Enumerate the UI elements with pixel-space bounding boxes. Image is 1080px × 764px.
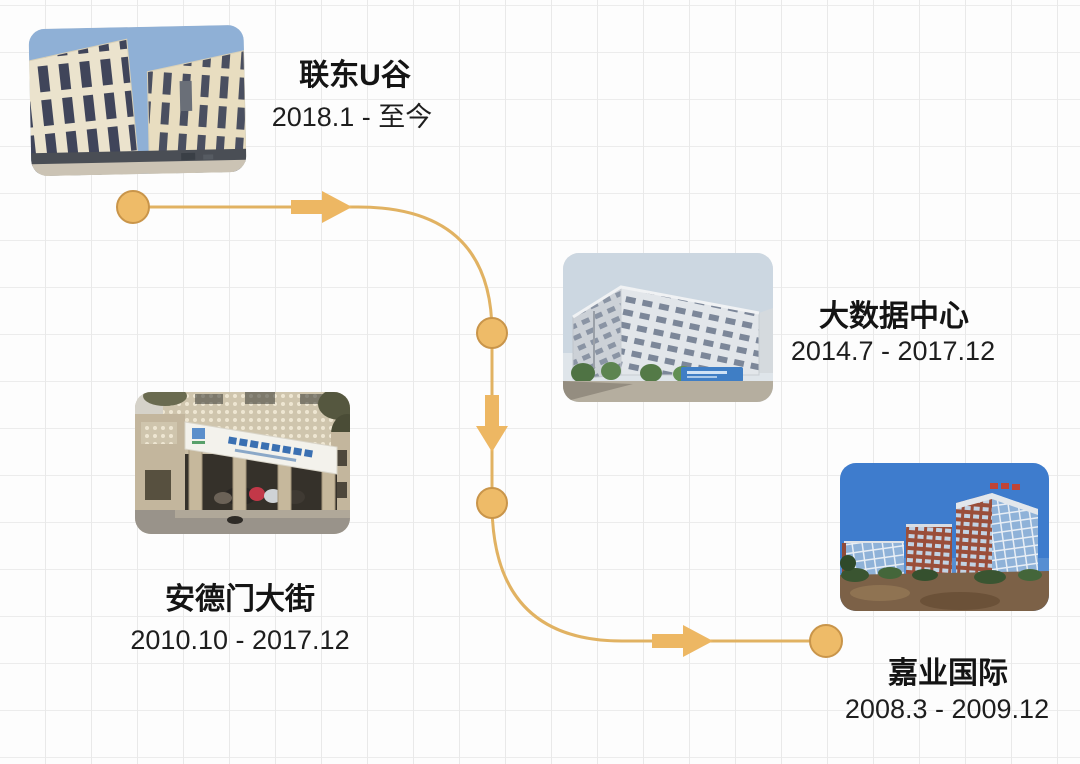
- andemen-street-photo: [135, 392, 350, 534]
- arrow-right-icon: [291, 191, 352, 223]
- item-title: 联东U谷: [205, 50, 505, 94]
- arrow-right-icon: [652, 625, 713, 657]
- timeline-node-1: [117, 191, 149, 223]
- item-period: 2010.10 - 2017.12: [90, 625, 390, 656]
- item-period: 2008.3 - 2009.12: [797, 694, 1080, 725]
- big-data-center-photo: [563, 253, 773, 402]
- arrow-down-icon: [476, 395, 508, 452]
- relocation-timeline-diagram: 联东U谷 2018.1 - 至今: [0, 0, 1080, 764]
- timeline-node-3: [477, 488, 507, 518]
- item-period: 2014.7 - 2017.12: [743, 336, 1043, 367]
- jiaye-international-photo: [840, 463, 1049, 611]
- item-title: 嘉业国际: [798, 648, 1080, 692]
- item-period: 2018.1 - 至今: [202, 95, 502, 134]
- timeline-node-2: [477, 318, 507, 348]
- item-title: 安德门大街: [90, 574, 390, 618]
- item-title: 大数据中心: [744, 291, 1044, 335]
